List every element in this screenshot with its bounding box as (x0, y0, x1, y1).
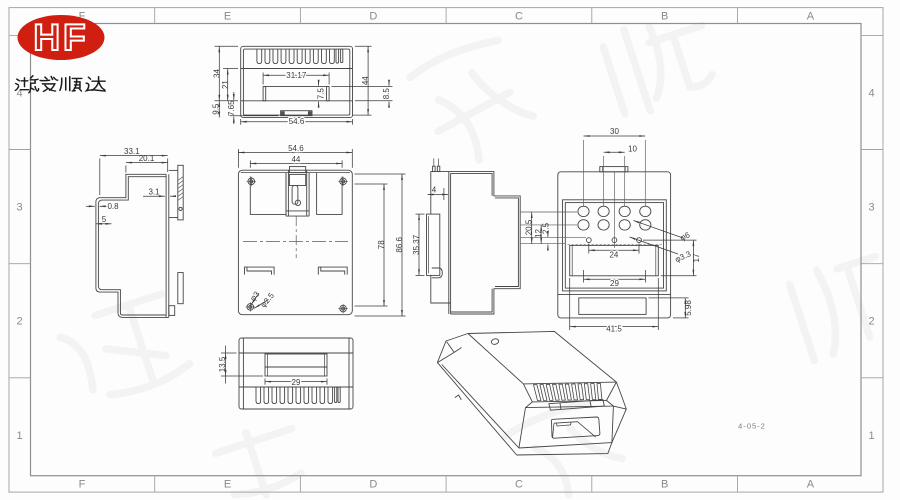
svg-text:A: A (807, 479, 815, 491)
svg-text:29: 29 (610, 279, 619, 288)
svg-text:41.5: 41.5 (606, 324, 622, 333)
svg-text:5: 5 (102, 215, 107, 224)
svg-text:17: 17 (692, 253, 701, 262)
svg-text:4: 4 (868, 88, 874, 100)
svg-text:1: 1 (16, 430, 22, 442)
svg-text:8.5: 8.5 (382, 88, 391, 100)
svg-text:2: 2 (16, 316, 22, 328)
svg-text:10: 10 (628, 144, 637, 153)
svg-text:31.17: 31.17 (286, 71, 307, 80)
svg-text:24: 24 (609, 250, 618, 259)
svg-text:7.65: 7.65 (227, 100, 236, 116)
svg-text:0.8: 0.8 (107, 202, 119, 211)
svg-text:86.6: 86.6 (395, 236, 404, 252)
svg-text:E: E (224, 11, 231, 23)
svg-text:20.1: 20.1 (139, 154, 155, 163)
svg-text:54.6: 54.6 (289, 117, 305, 126)
svg-text:3: 3 (868, 202, 874, 214)
svg-text:4-05-2: 4-05-2 (738, 422, 766, 431)
svg-text:7.5: 7.5 (317, 88, 326, 100)
svg-text:33.1: 33.1 (124, 147, 140, 156)
svg-text:35.37: 35.37 (412, 234, 421, 255)
svg-text:2.5: 2.5 (541, 222, 550, 234)
svg-text:13.5: 13.5 (218, 356, 227, 372)
svg-text:C: C (515, 479, 523, 491)
svg-text:21: 21 (221, 80, 230, 89)
svg-text:44: 44 (361, 76, 370, 85)
svg-text:HF: HF (33, 17, 88, 58)
svg-text:C: C (515, 11, 523, 23)
svg-text:34: 34 (212, 69, 221, 78)
svg-text:F: F (79, 479, 86, 491)
svg-text:1: 1 (868, 430, 874, 442)
svg-text:3: 3 (16, 202, 22, 214)
svg-text:B: B (661, 479, 668, 491)
svg-text:78: 78 (377, 240, 386, 249)
svg-text:D: D (369, 479, 377, 491)
svg-text:3.1: 3.1 (148, 187, 160, 196)
svg-text:B: B (661, 11, 668, 23)
svg-text:2: 2 (868, 316, 874, 328)
svg-text:30: 30 (610, 127, 619, 136)
svg-text:54.6: 54.6 (288, 144, 304, 153)
svg-text:29: 29 (292, 378, 301, 387)
svg-text:9.5: 9.5 (212, 103, 221, 115)
svg-text:20.5: 20.5 (525, 219, 534, 235)
svg-text:4: 4 (432, 185, 437, 194)
svg-text:5.98: 5.98 (684, 300, 693, 316)
svg-text:A: A (807, 11, 815, 23)
svg-text:44: 44 (291, 155, 300, 164)
svg-text:D: D (369, 11, 377, 23)
svg-text:E: E (224, 479, 231, 491)
